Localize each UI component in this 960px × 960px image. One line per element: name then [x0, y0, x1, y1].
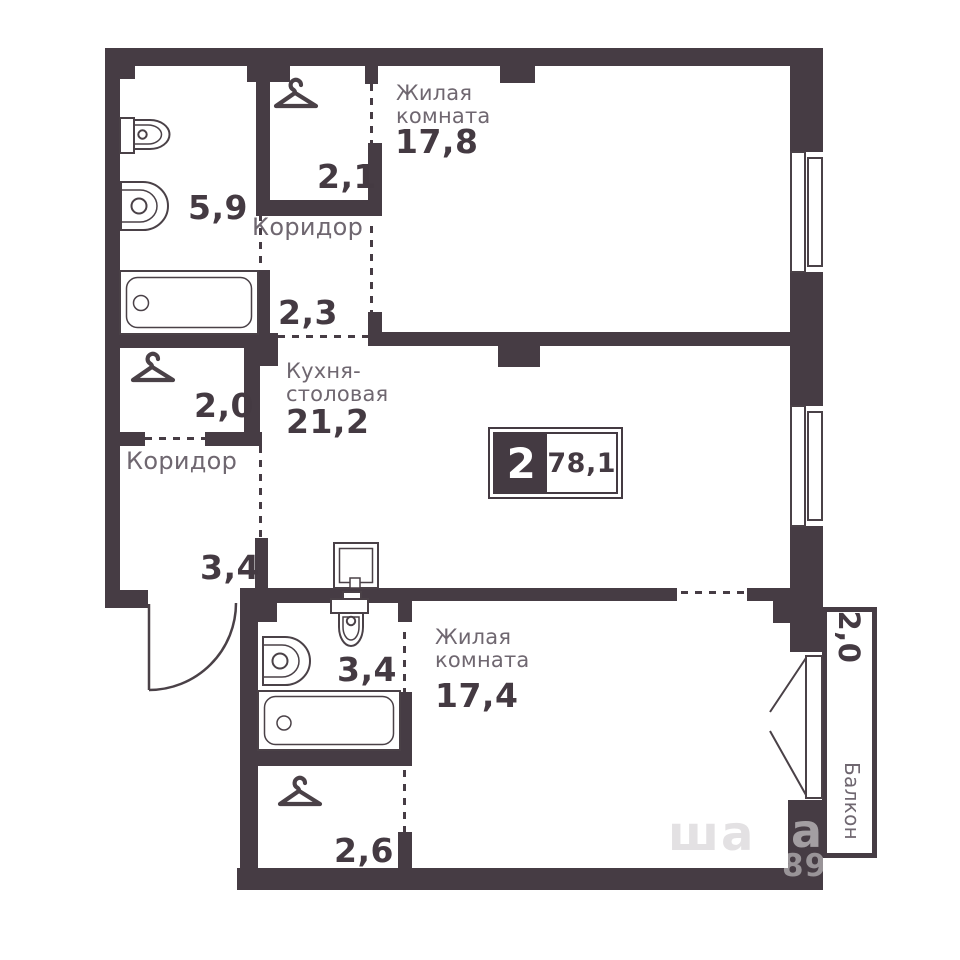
room-label-kitchen: Кухня- столовая	[286, 360, 388, 406]
area-hall-top: 2,3	[278, 293, 338, 332]
hanger-icon	[276, 80, 316, 106]
area-closet-bottom: 2,6	[334, 831, 394, 870]
area-closet-left: 2,0	[194, 386, 254, 425]
balcony-door	[770, 656, 822, 798]
area-balcony: 2,0	[832, 611, 866, 664]
sink-icon	[263, 637, 310, 685]
room-label-living-bottom: Жилая комната	[435, 626, 529, 672]
area-living-bottom: 17,4	[435, 676, 518, 715]
window	[791, 406, 822, 526]
badge-total-area: 78,1	[547, 434, 616, 492]
area-living-top: 17,8	[395, 122, 478, 161]
washing-machine-icon	[334, 543, 378, 588]
area-hall-left: 3,4	[200, 548, 260, 587]
window	[791, 152, 822, 272]
floor-plan: ша	[0, 0, 960, 960]
entrance-door	[149, 603, 236, 690]
label-hall-left: Коридор	[126, 447, 237, 475]
badge-rooms-count: 2	[495, 434, 547, 492]
toilet-icon	[120, 118, 170, 153]
hanger-icon	[133, 354, 173, 380]
area-bath-main: 5,9	[188, 188, 248, 227]
bathtub-icon	[258, 691, 400, 750]
toilet-icon	[331, 592, 368, 646]
label-hall-top: Коридор	[252, 213, 363, 241]
area-bath-small: 3,4	[337, 650, 397, 689]
area-kitchen: 21,2	[286, 402, 369, 441]
hanger-icon	[280, 778, 320, 804]
label-balcony: Балкон	[840, 762, 864, 840]
watermark-digits: 89	[782, 848, 827, 884]
sink-icon	[121, 182, 168, 230]
bathtub-icon	[120, 271, 258, 334]
area-closet-top: 2,1	[317, 157, 377, 196]
apartment-badge: 2 78,1	[488, 427, 623, 499]
